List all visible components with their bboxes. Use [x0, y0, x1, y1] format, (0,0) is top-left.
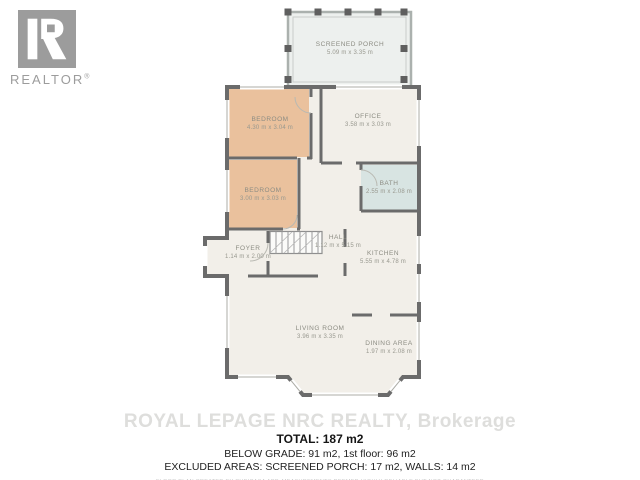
room-label-bath: BATH 2.55 m x 2.08 m: [366, 179, 412, 197]
room-label-foyer: FOYER 1.14 m x 2.00 m: [225, 244, 271, 262]
room-label-living-room: LIVING ROOM 3.96 m x 3.35 m: [296, 324, 345, 342]
floor-plan-page: REALTOR®: [0, 0, 640, 480]
grade-area-line: BELOW GRADE: 91 m2, 1st floor: 96 m2: [0, 448, 640, 460]
room-label-office: OFFICE 3.58 m x 3.03 m: [345, 112, 391, 130]
room-label-kitchen: KITCHEN 5.55 m x 4.78 m: [360, 249, 406, 267]
brokerage-watermark: ROYAL LEPAGE NRC REALTY, Brokerage: [0, 412, 640, 431]
excluded-area-line: EXCLUDED AREAS: SCREENED PORCH: 17 m2, W…: [0, 461, 640, 473]
room-label-hall: HALL 1.12 m x 5.15 m: [315, 233, 361, 251]
total-area-line: TOTAL: 187 m2: [0, 433, 640, 447]
room-label-bedroom-2: BEDROOM 3.00 m x 3.03 m: [240, 186, 286, 204]
room-label-screened-porch: SCREENED PORCH 5.09 m x 3.35 m: [316, 40, 384, 58]
summary-block: ROYAL LEPAGE NRC REALTY, Brokerage TOTAL…: [0, 412, 640, 480]
room-label-bedroom-1: BEDROOM 4.30 m x 3.04 m: [247, 115, 293, 133]
room-label-dining-area: DINING AREA 1.97 m x 2.08 m: [365, 339, 412, 357]
